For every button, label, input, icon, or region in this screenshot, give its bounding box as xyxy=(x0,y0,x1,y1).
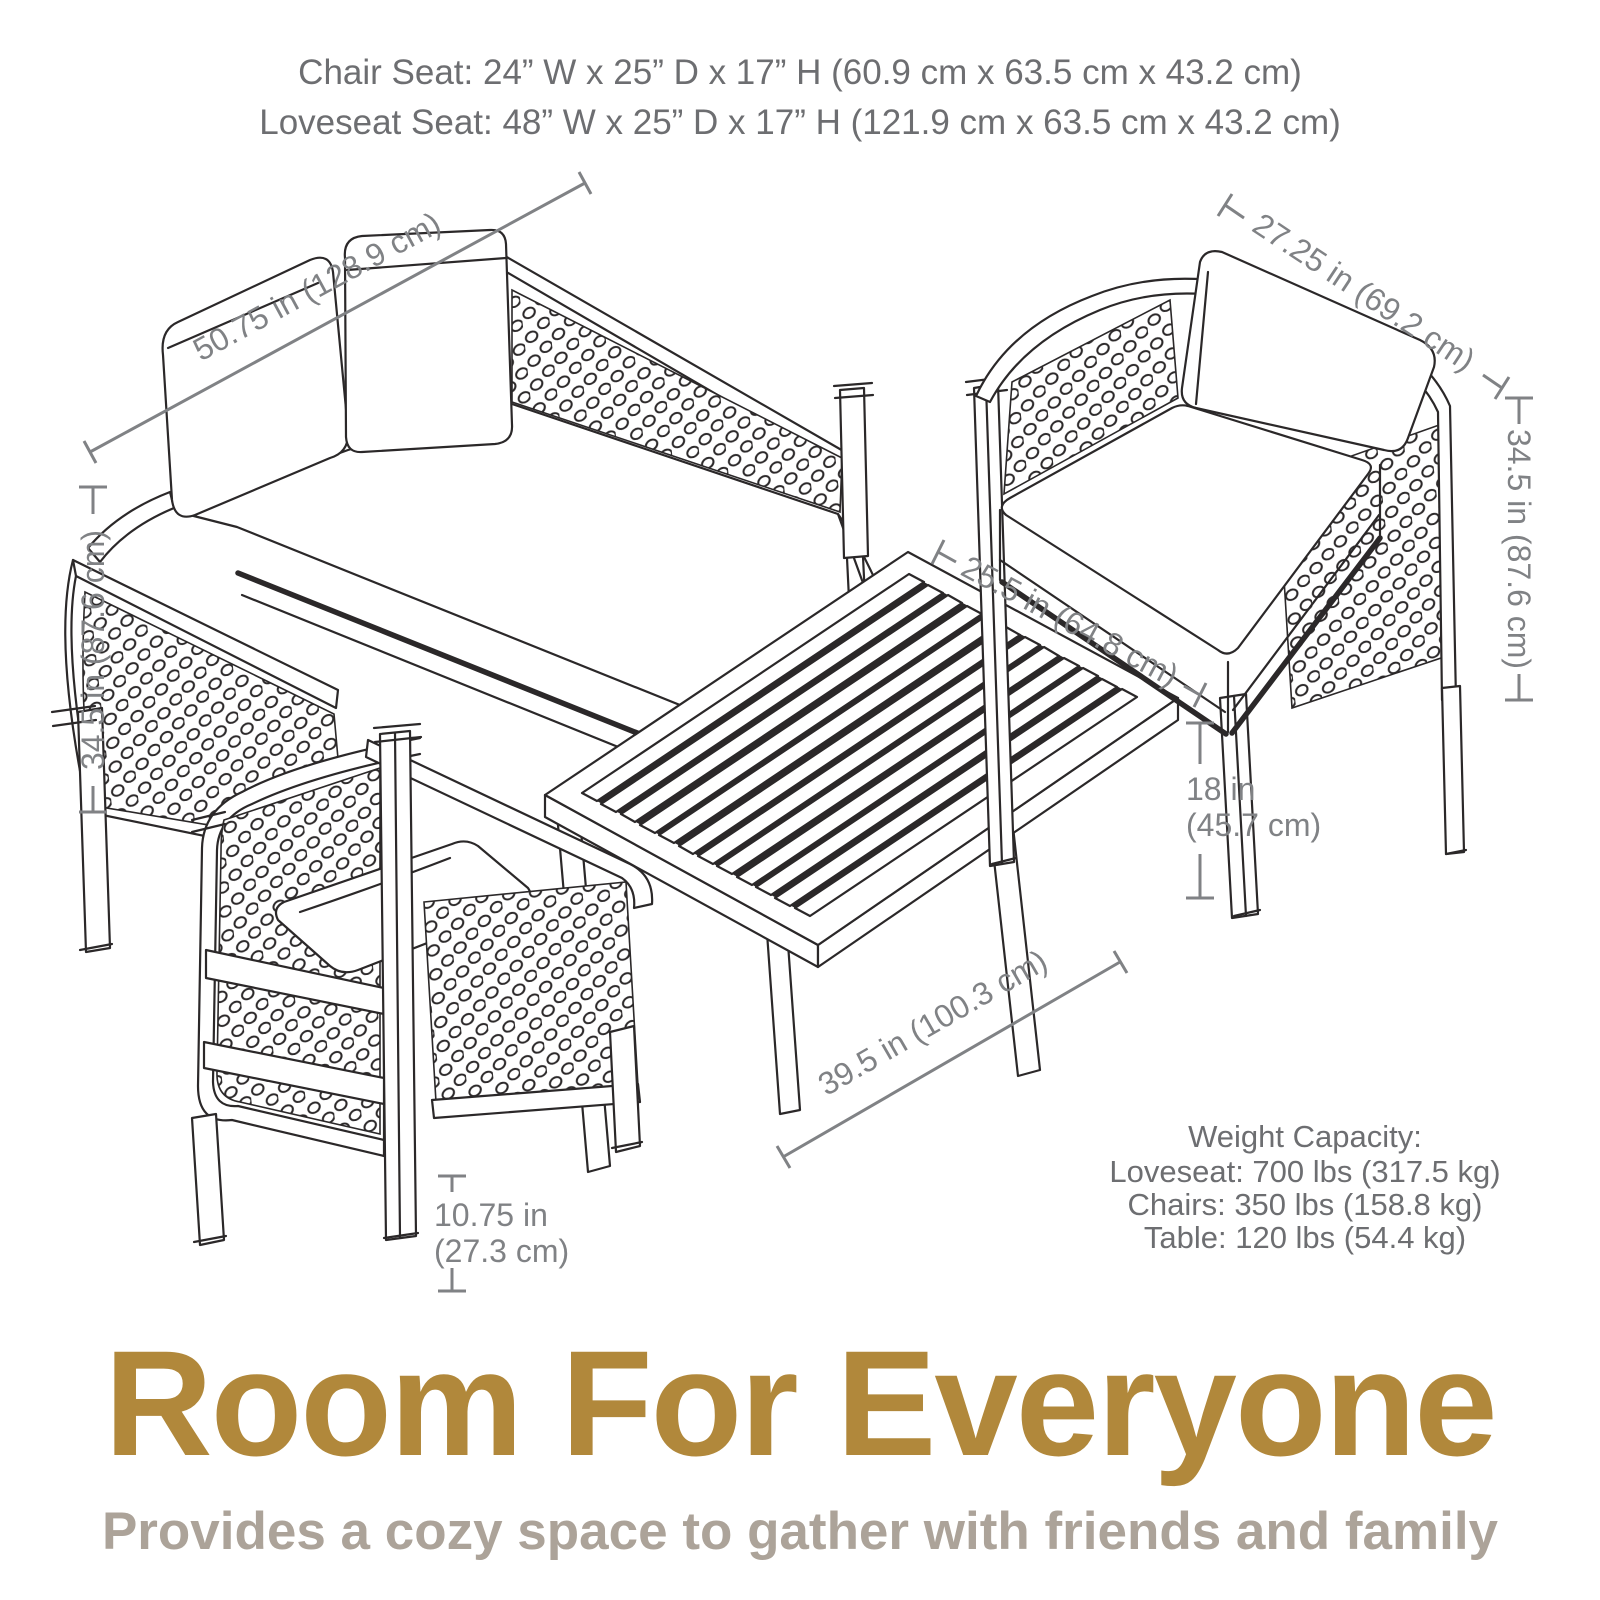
weight-capacity-block: Weight Capacity: Loveseat: 700 lbs (317.… xyxy=(1055,1120,1555,1254)
product-dimension-infographic: Chair Seat: 24” W x 25” D x 17” H (60.9 … xyxy=(0,0,1600,1600)
dim-label-arm-height-2: (27.3 cm) xyxy=(434,1233,569,1269)
weight-capacity-title: Weight Capacity: xyxy=(1055,1120,1555,1153)
weight-capacity-chairs: Chairs: 350 lbs (158.8 kg) xyxy=(1055,1188,1555,1221)
weight-capacity-table: Table: 120 lbs (54.4 kg) xyxy=(1055,1221,1555,1254)
dim-label-table-height-1: 18 in xyxy=(1186,771,1255,807)
dim-label-arm-height-1: 10.75 in xyxy=(434,1197,548,1233)
dim-label-chair-height: 34.5 in (87.6 cm) xyxy=(1501,429,1537,669)
page-subtitle: Provides a cozy space to gather with fri… xyxy=(0,1502,1600,1562)
dim-label-table-height-2: (45.7 cm) xyxy=(1186,807,1321,843)
page-title: Room For Everyone xyxy=(0,1318,1600,1488)
dim-label-loveseat-height: 34.5 in (87.6 cm) xyxy=(75,530,111,770)
weight-capacity-loveseat: Loveseat: 700 lbs (317.5 kg) xyxy=(1055,1155,1555,1188)
